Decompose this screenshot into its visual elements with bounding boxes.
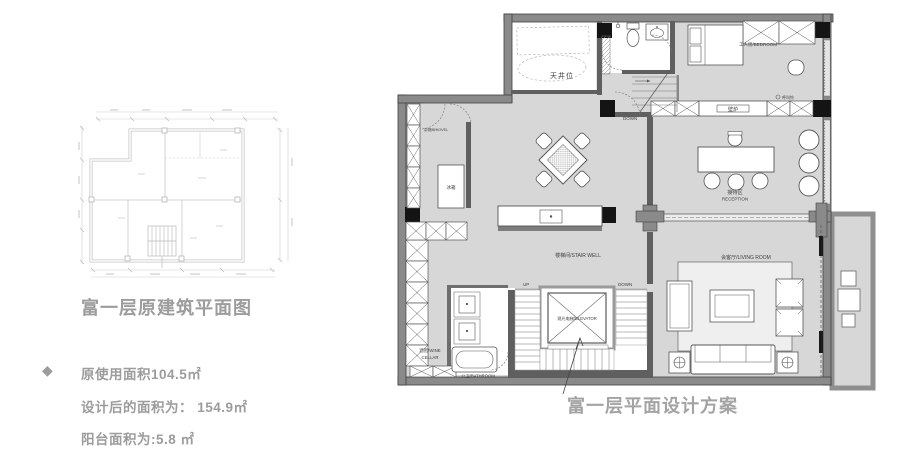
label-maid-room: 工人房/BEDROOM xyxy=(739,41,777,48)
page: 富一层原建筑平面图 ◆ 原使用面积104.5㎡ 设计后的面积为： 154.9㎡ … xyxy=(0,0,903,461)
label-stairwell: 楼梯间/STAIR WELL xyxy=(555,252,601,259)
dining-table xyxy=(535,132,591,188)
label-elevator: 观光电梯/ELEVATOR xyxy=(557,315,597,322)
label-bathroom: 公卫/BATHROOM xyxy=(461,374,495,379)
balcony xyxy=(832,214,873,388)
design-plan-drawing: 天井位 DOWN 工人房/BEDROOM 呼叫铃 壁炉 接待区 RECEPTIO… xyxy=(390,0,903,400)
label-wine-cellar-2: CELLAR xyxy=(421,355,438,360)
label-reception-cn: 接待区 xyxy=(727,188,743,196)
label-skylight: 天井位 xyxy=(550,71,574,80)
label-reception-en: RECEPTION xyxy=(722,197,748,202)
label-living-room: 会客厅/LIVING ROOM xyxy=(721,254,771,261)
label-up: UP xyxy=(523,282,529,287)
stat-original-area: 原使用面积104.5㎡ xyxy=(81,363,201,383)
label-down-top: DOWN xyxy=(623,116,637,121)
stat-designed-area: 设计后的面积为： 154.9㎡ xyxy=(81,396,248,416)
design-plan-title: 富一层平面设计方案 xyxy=(567,392,738,418)
window-slots xyxy=(824,40,830,204)
original-plan-title: 富一层原建筑平面图 xyxy=(81,294,252,320)
label-storage: 杂物间/HOVEL xyxy=(424,127,448,132)
stat-balcony-area: 阳台面积为:5.8 ㎡ xyxy=(81,428,195,448)
label-wine-cellar-1: 酒窖/WINE xyxy=(419,347,441,354)
label-down-mid: DOWN xyxy=(618,282,632,287)
label-fireplace: 壁炉 xyxy=(728,106,738,113)
skylight-room xyxy=(511,21,597,92)
dimension-lines xyxy=(79,110,292,277)
label-fridge: 冰箱 xyxy=(447,184,456,191)
diamond-bullet-icon: ◆ xyxy=(42,362,53,379)
original-plan-drawing xyxy=(70,98,305,296)
label-call-bell: 呼叫铃 xyxy=(782,94,794,100)
original-plan-specks xyxy=(118,150,227,238)
kitchen-island xyxy=(498,206,602,226)
glass-divider xyxy=(660,214,812,221)
